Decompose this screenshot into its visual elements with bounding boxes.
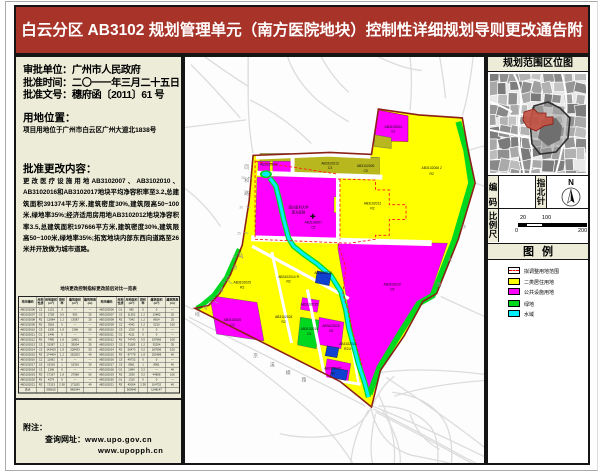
svg-text:AB3102008 2: AB3102008 2 [422, 166, 442, 170]
svg-text:R2: R2 [331, 371, 335, 375]
svg-text:AB3102022: AB3102022 [339, 342, 357, 346]
svg-text:道: 道 [232, 264, 237, 271]
svg-text:R2: R2 [370, 207, 374, 211]
svg-text:AB3102019: AB3102019 [301, 327, 319, 331]
svg-text:溪: 溪 [270, 362, 275, 369]
svg-text:AB3102007: AB3102007 [305, 220, 323, 224]
svg-text:AB3102018: AB3102018 [314, 271, 332, 275]
svg-text:30: 30 [239, 206, 243, 210]
svg-text:C5: C5 [390, 288, 394, 292]
svg-text:线: 线 [195, 311, 200, 318]
svg-text:AB3102025: AB3102025 [233, 281, 251, 285]
svg-text:交: 交 [225, 276, 230, 283]
svg-text:C5: C5 [363, 169, 367, 173]
svg-text:路: 路 [437, 282, 442, 289]
svg-text:AB3102021: AB3102021 [324, 367, 342, 371]
svg-text:C5: C5 [311, 225, 315, 229]
svg-text:路: 路 [244, 190, 249, 197]
svg-text:京: 京 [253, 353, 258, 360]
svg-text:R2: R2 [240, 286, 244, 290]
svg-text:号: 号 [203, 305, 208, 311]
svg-text:AB3102010: AB3102010 [383, 283, 401, 287]
svg-text:南方医院: 南方医院 [292, 210, 306, 215]
svg-text:G1: G1 [391, 130, 396, 134]
svg-text:太: 太 [447, 256, 452, 263]
svg-text:AB3102015: AB3102015 [301, 302, 319, 306]
svg-text:20: 20 [232, 255, 236, 259]
svg-text:N: N [568, 178, 574, 187]
svg-text:R2②: R2② [344, 347, 351, 351]
svg-text:AB3102020: AB3102020 [322, 324, 340, 328]
svg-text:AB3102024: AB3102024 [275, 315, 293, 319]
svg-text:AB3102026: AB3102026 [224, 318, 242, 322]
svg-text:通: 通 [219, 287, 224, 294]
svg-text:25: 25 [237, 231, 241, 235]
svg-text:R2: R2 [430, 172, 434, 176]
svg-text:轨: 轨 [238, 252, 243, 259]
svg-text:AB3102004: AB3102004 [384, 125, 402, 129]
svg-text:AB3102005: AB3102005 [357, 164, 375, 168]
svg-text:R2: R2 [282, 320, 286, 324]
svg-text:C5: C5 [329, 329, 333, 333]
svg-text:路: 路 [301, 376, 306, 383]
svg-text:AB3102014 R: AB3102014 R [278, 275, 299, 279]
svg-text:同: 同 [244, 165, 249, 171]
svg-text:AB3102003: AB3102003 [260, 162, 278, 166]
svg-text:沙: 沙 [461, 224, 466, 230]
svg-text:C3: C3 [230, 323, 234, 327]
svg-text:AB3102013: AB3102013 [321, 161, 339, 165]
svg-text:和: 和 [244, 177, 249, 184]
svg-text:R2: R2 [286, 280, 290, 284]
svg-text:横: 横 [286, 369, 291, 376]
svg-text:三: 三 [211, 297, 216, 303]
svg-text:AB3102012: AB3102012 [364, 202, 382, 206]
svg-text:南方医科大学: 南方医科大学 [288, 205, 309, 210]
svg-text:G1: G1 [307, 332, 312, 336]
svg-text:C3: C3 [328, 166, 332, 170]
